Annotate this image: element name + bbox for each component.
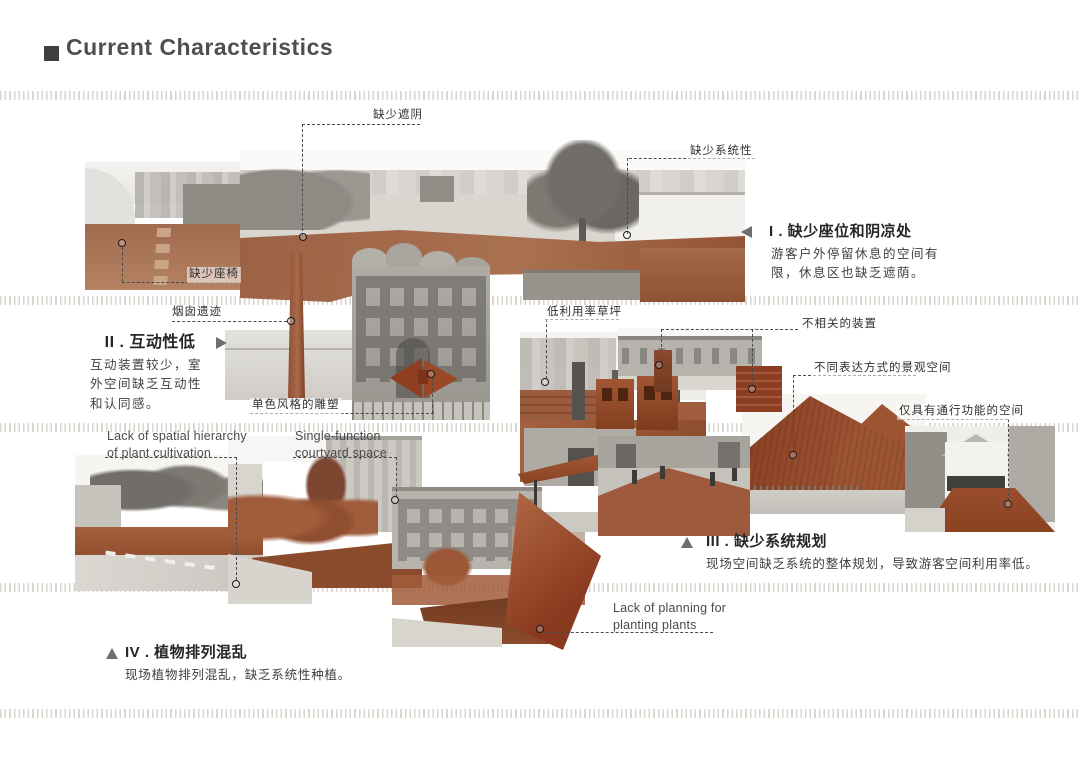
section-3-title: III . 缺少系统规划	[706, 530, 1066, 551]
callout-marker	[536, 625, 544, 633]
section-1-body: 游客户外停留休息的空间有 限，休息区也缺乏遮荫。	[771, 245, 949, 284]
callout-line	[302, 124, 303, 236]
sculpture-stump	[572, 362, 585, 424]
callout-label-irrelevant-installations: 不相关的装置	[800, 317, 879, 333]
callout-marker	[299, 233, 307, 241]
triangle-up-icon	[681, 537, 693, 548]
callout-label-planting-planning: Lack of planning for planting plants	[611, 600, 728, 634]
photo-courtyard-people	[598, 436, 750, 536]
photo-layer	[602, 388, 612, 401]
triangle-left-icon	[741, 226, 752, 238]
photo-panorama-platform	[523, 270, 651, 300]
title-square-icon	[44, 46, 59, 61]
photo-layer	[742, 490, 926, 514]
callout-line	[627, 158, 628, 234]
callout-line	[793, 375, 794, 452]
person-figure	[660, 466, 665, 479]
callout-line	[546, 319, 547, 379]
section-3-body: 现场空间缺乏系统的整体规划，导致游客空间利用率低。	[706, 555, 1066, 574]
photo-panorama-right-ground	[640, 248, 745, 302]
section-1-title: I . 缺少座位和阴凉处	[769, 220, 981, 241]
callout-line	[172, 321, 287, 322]
callout-label-mixed-expression-spaces: 不同表达方式的景观空间	[812, 361, 954, 377]
dotted-separator	[0, 709, 1080, 718]
section-2-title: II . 互动性低	[90, 328, 210, 352]
installation-door-object	[654, 350, 672, 392]
photo-panorama-sky	[240, 150, 745, 242]
callout-line	[122, 247, 123, 282]
callout-label-passage-only-space: 仅具有通行功能的空间	[897, 404, 1026, 420]
dotted-separator	[0, 91, 1080, 100]
section-2-body: 互动装置较少，室 外空间缺乏互动性 和认同感。	[90, 356, 208, 414]
section-1-seating-shade: I . 缺少座位和阴凉处 游客户外停留休息的空间有 限，休息区也缺乏遮荫。	[769, 220, 981, 284]
callout-label-single-function: Single-function courtyard space	[293, 428, 389, 462]
photo-layer	[622, 348, 758, 364]
callout-line	[236, 457, 237, 580]
person-figure	[732, 468, 737, 481]
callout-line	[1008, 419, 1009, 501]
triangle-right-icon	[216, 337, 227, 349]
triangle-up-icon	[106, 648, 118, 659]
photo-layer	[183, 184, 245, 228]
callout-label-monochrome-sculpture: 单色风格的雕塑	[250, 398, 342, 414]
callout-line	[432, 378, 433, 413]
section-2-low-interactivity: II . 互动性低 互动装置较少，室 外空间缺乏互动性 和认同感。	[90, 328, 210, 414]
callout-marker	[655, 361, 663, 369]
person-figure	[632, 470, 637, 484]
slide-canvas: Current Characteristics	[0, 0, 1080, 764]
callout-marker	[1004, 500, 1012, 508]
callout-line	[752, 329, 753, 386]
callout-marker	[623, 231, 631, 239]
installation-brick-stack	[736, 366, 782, 412]
photo-layer	[579, 218, 586, 244]
photo-hollow-block	[596, 379, 634, 429]
page-title: Current Characteristics	[66, 34, 333, 61]
callout-marker	[118, 239, 126, 247]
callout-line	[661, 329, 798, 330]
callout-marker	[789, 451, 797, 459]
photo-layer	[352, 402, 490, 420]
callout-line	[302, 124, 420, 125]
section-4-title: IV . 植物排列混乱	[125, 641, 485, 662]
callout-marker	[541, 378, 549, 386]
photo-layer	[420, 176, 454, 202]
callout-line	[396, 457, 397, 497]
callout-label-low-use-lawn: 低利用率草坪	[545, 305, 624, 321]
photo-layer	[228, 478, 378, 550]
photo-layer	[718, 442, 740, 468]
photo-layer	[240, 162, 370, 230]
callout-label-lack-of-system: 缺少系统性	[688, 144, 755, 160]
photo-alley	[905, 426, 1055, 532]
callout-label-lack-of-shade: 缺少遮阴	[371, 108, 425, 124]
callout-label-lack-of-seats: 缺少座椅	[187, 267, 241, 283]
photo-layer	[905, 508, 945, 532]
photo-panorama-tree	[527, 140, 639, 244]
callout-marker	[748, 385, 756, 393]
section-4-body: 现场植物排列混乱，缺乏系统性种植。	[125, 666, 485, 685]
photo-layer	[618, 388, 628, 401]
callout-label-chimney-relic: 烟囱遗迹	[170, 305, 224, 321]
person-figure	[710, 472, 715, 486]
callout-marker	[232, 580, 240, 588]
section-4-chaotic-planting: IV . 植物排列混乱 现场植物排列混乱，缺乏系统性种植。	[125, 641, 485, 685]
callout-marker	[391, 496, 399, 504]
callout-label-spatial-hierarchy: Lack of spatial hierarchy of plant culti…	[105, 428, 249, 462]
callout-marker	[287, 317, 295, 325]
callout-line	[661, 329, 662, 362]
photo-factory-facade	[352, 242, 490, 420]
callout-marker	[427, 370, 435, 378]
photo-layer	[616, 444, 636, 468]
section-3-no-system-planning: III . 缺少系统规划 现场空间缺乏系统的整体规划，导致游客空间利用率低。	[706, 530, 1066, 574]
photo-layer	[905, 432, 947, 516]
